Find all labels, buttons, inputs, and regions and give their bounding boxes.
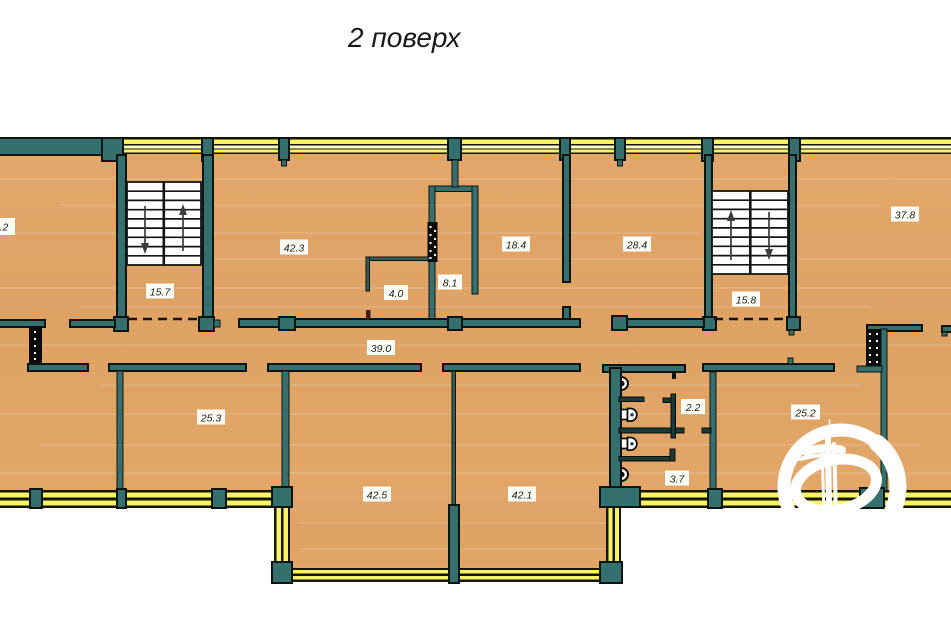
svg-text:8.1: 8.1 xyxy=(443,278,458,290)
svg-text:42.3: 42.3 xyxy=(284,243,305,255)
svg-text:15.8: 15.8 xyxy=(736,295,757,307)
svg-text:15.7: 15.7 xyxy=(150,287,172,299)
svg-text:42.1: 42.1 xyxy=(512,490,532,502)
svg-text:39.0: 39.0 xyxy=(371,343,392,355)
svg-text:25.3: 25.3 xyxy=(200,413,222,425)
svg-text:28.4: 28.4 xyxy=(626,240,648,252)
svg-text:42.5: 42.5 xyxy=(367,490,388,502)
svg-text:25.2: 25.2 xyxy=(794,408,816,420)
svg-text:1.2: 1.2 xyxy=(0,222,8,234)
svg-text:2 поверх: 2 поверх xyxy=(347,22,462,53)
svg-text:18.4: 18.4 xyxy=(506,240,527,252)
svg-text:37.8: 37.8 xyxy=(895,210,916,222)
svg-text:3.7: 3.7 xyxy=(670,474,686,486)
svg-text:4.0: 4.0 xyxy=(389,288,404,300)
svg-text:2.2: 2.2 xyxy=(685,402,701,414)
